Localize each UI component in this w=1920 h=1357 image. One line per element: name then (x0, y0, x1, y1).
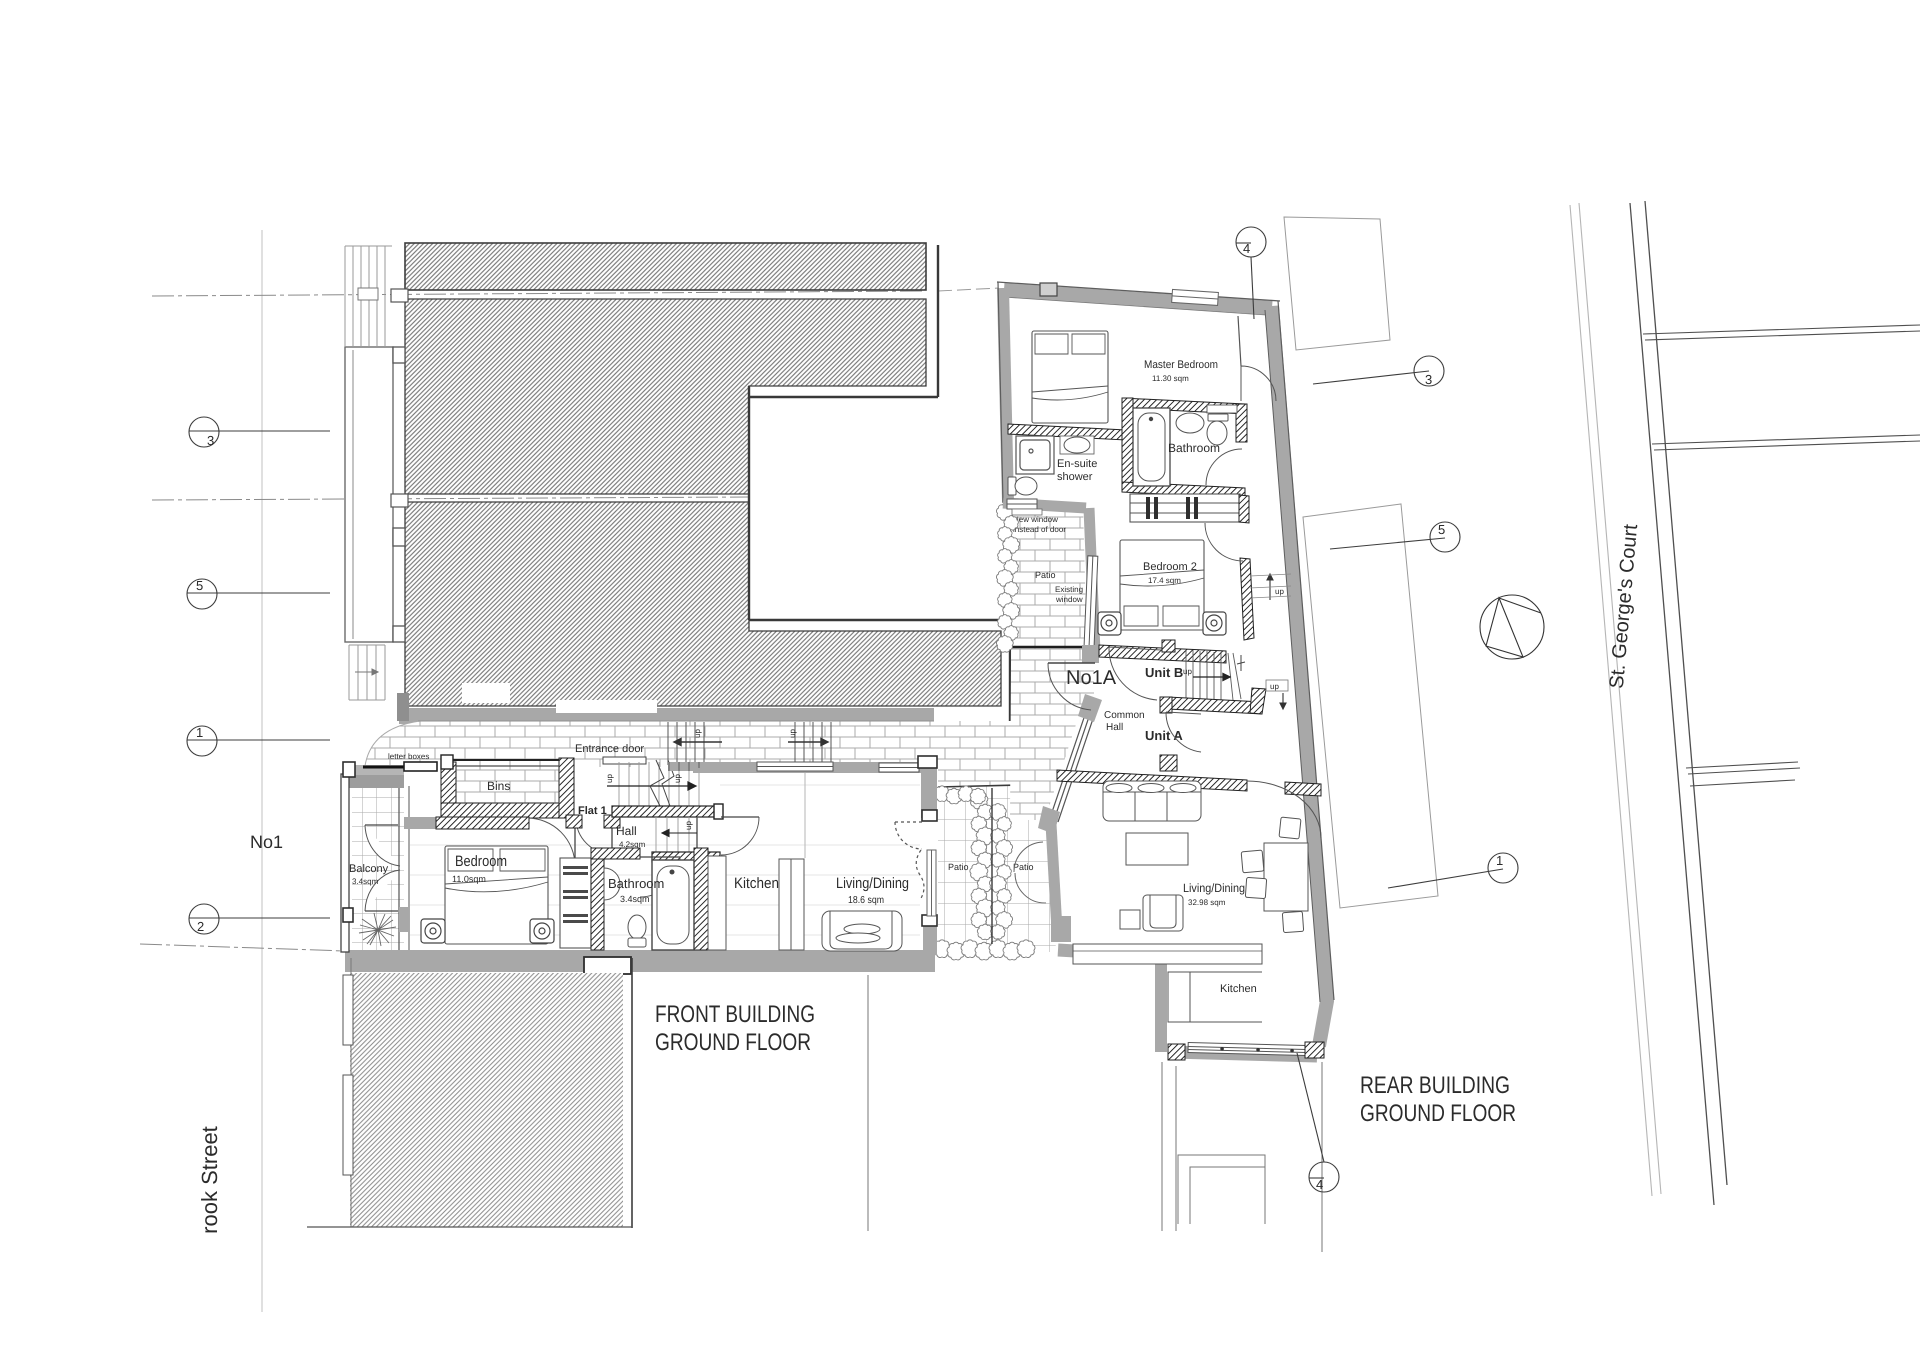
svg-text:En-suite: En-suite (1057, 458, 1097, 470)
svg-text:4: 4 (1316, 1177, 1323, 1192)
svg-text:New window: New window (1013, 515, 1058, 524)
svg-text:rook Street: rook Street (197, 1126, 222, 1234)
svg-text:11.30 sqm: 11.30 sqm (1152, 374, 1189, 383)
svg-text:up: up (1275, 587, 1284, 596)
svg-text:GROUND FLOOR: GROUND FLOOR (1360, 1100, 1516, 1127)
svg-text:up: up (693, 729, 702, 738)
svg-text:32.98 sqm: 32.98 sqm (1188, 898, 1226, 907)
svg-text:window: window (1055, 595, 1083, 604)
svg-text:FRONT BUILDING: FRONT BUILDING (655, 1001, 815, 1028)
svg-text:4: 4 (1243, 241, 1250, 256)
svg-text:letter boxes: letter boxes (388, 752, 429, 761)
svg-text:up: up (684, 821, 693, 830)
svg-text:shower: shower (1057, 471, 1093, 483)
svg-text:Patio: Patio (948, 862, 969, 872)
svg-text:Kitchen: Kitchen (734, 875, 779, 892)
svg-text:Hall: Hall (616, 824, 637, 838)
svg-text:Patio: Patio (1013, 862, 1034, 872)
svg-text:3: 3 (207, 433, 214, 448)
svg-text:Bins: Bins (487, 779, 510, 793)
svg-text:REAR BUILDING: REAR BUILDING (1360, 1072, 1510, 1099)
svg-text:Unit B: Unit B (1145, 665, 1183, 680)
svg-text:2: 2 (197, 919, 204, 934)
svg-text:Patio: Patio (1035, 570, 1056, 580)
svg-text:3: 3 (1425, 372, 1432, 387)
svg-text:18.6 sqm: 18.6 sqm (848, 895, 884, 906)
svg-text:Master Bedroom: Master Bedroom (1144, 359, 1218, 371)
svg-text:11.0sqm: 11.0sqm (452, 874, 486, 884)
svg-text:No1A: No1A (1066, 667, 1117, 689)
svg-text:5: 5 (196, 578, 203, 593)
svg-text:Bedroom: Bedroom (455, 853, 507, 870)
svg-text:up: up (1183, 667, 1192, 676)
svg-text:up: up (605, 774, 614, 783)
svg-text:up: up (1270, 682, 1279, 691)
svg-text:GROUND FLOOR: GROUND FLOOR (655, 1029, 811, 1056)
svg-text:3.4sqm: 3.4sqm (620, 894, 650, 904)
svg-text:1: 1 (196, 725, 203, 740)
svg-text:3.4sqm: 3.4sqm (352, 877, 379, 886)
svg-text:No1: No1 (250, 832, 283, 852)
svg-text:Kitchen: Kitchen (1220, 983, 1257, 995)
svg-text:Living/Dining: Living/Dining (836, 875, 909, 892)
svg-text:Existing: Existing (1055, 585, 1083, 594)
svg-text:Bathroom: Bathroom (1168, 441, 1220, 455)
svg-text:instead of door: instead of door (1013, 525, 1066, 534)
svg-text:Balcony: Balcony (349, 863, 389, 875)
svg-text:5: 5 (1438, 522, 1445, 537)
svg-text:Hall: Hall (1106, 722, 1123, 733)
svg-text:Common: Common (1104, 710, 1145, 721)
svg-text:up: up (673, 774, 682, 783)
svg-text:Bedroom 2: Bedroom 2 (1143, 561, 1197, 573)
svg-text:Bathroom: Bathroom (608, 876, 664, 891)
svg-text:up: up (788, 729, 797, 738)
svg-text:17.4 sqm: 17.4 sqm (1148, 576, 1181, 585)
svg-text:1: 1 (1496, 853, 1503, 868)
svg-text:Living/Dining: Living/Dining (1183, 881, 1245, 895)
svg-text:Entrance door: Entrance door (575, 743, 644, 755)
